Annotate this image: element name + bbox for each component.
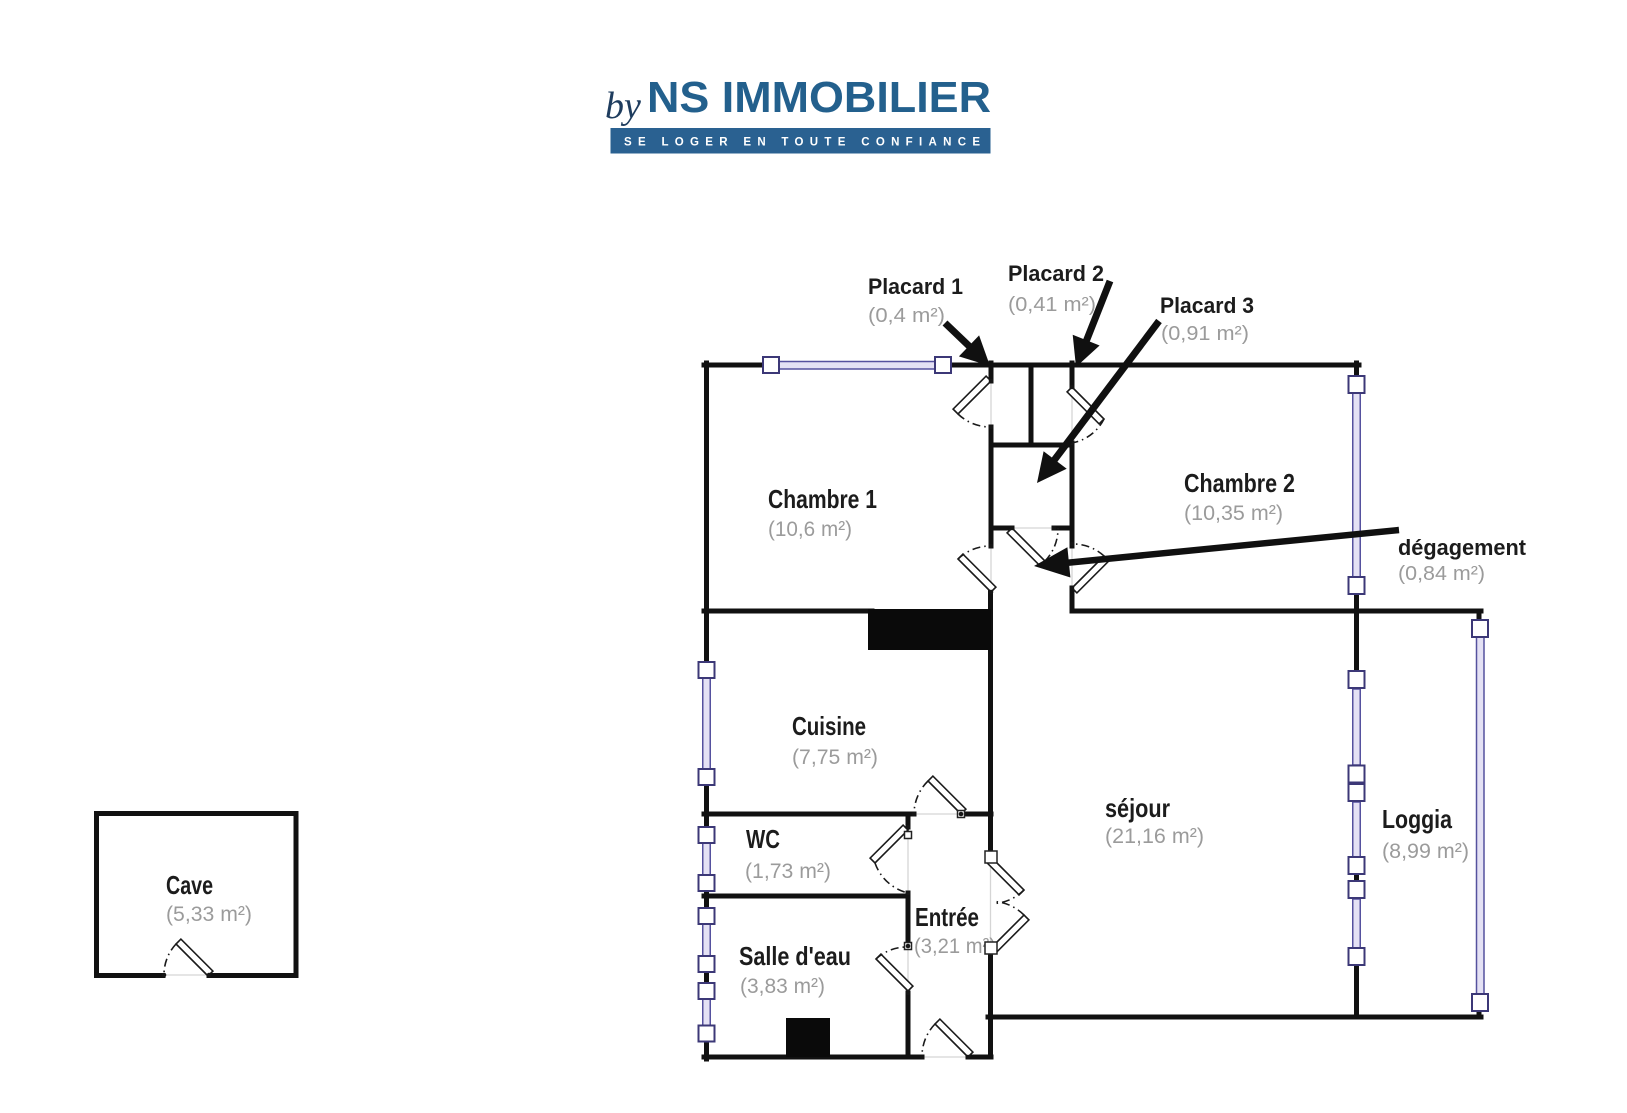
svg-text:NS IMMOBILIER: NS IMMOBILIER [647, 73, 991, 122]
svg-text:(0,84 m²): (0,84 m²) [1398, 563, 1485, 585]
svg-text:(10,6 m²): (10,6 m²) [768, 518, 852, 541]
svg-text:séjour: séjour [1105, 793, 1170, 823]
svg-text:(0,41 m²): (0,41 m²) [1008, 294, 1096, 316]
svg-text:(7,75 m²): (7,75 m²) [792, 746, 878, 769]
svg-text:(8,99 m²): (8,99 m²) [1382, 840, 1469, 863]
svg-text:Chambre 2: Chambre 2 [1184, 468, 1295, 498]
svg-text:(3,83 m²): (3,83 m²) [740, 975, 825, 998]
svg-text:Salle d'eau: Salle d'eau [739, 941, 851, 971]
svg-text:(1,73 m²): (1,73 m²) [745, 860, 831, 883]
svg-text:(0,91 m²): (0,91 m²) [1161, 323, 1249, 345]
svg-text:dégagement: dégagement [1398, 535, 1527, 560]
svg-text:(21,16 m²): (21,16 m²) [1105, 825, 1204, 848]
svg-text:Placard 3: Placard 3 [1160, 293, 1254, 318]
svg-text:(5,33 m²): (5,33 m²) [166, 903, 252, 926]
svg-text:by: by [605, 85, 641, 127]
svg-text:Cave: Cave [166, 870, 213, 900]
svg-text:Placard 2: Placard 2 [1008, 261, 1104, 286]
svg-text:Cuisine: Cuisine [792, 711, 866, 741]
svg-text:(10,35 m²): (10,35 m²) [1184, 502, 1283, 525]
svg-text:(0,4 m²): (0,4 m²) [868, 305, 945, 327]
svg-text:Chambre 1: Chambre 1 [768, 484, 877, 514]
svg-text:Placard 1: Placard 1 [868, 274, 963, 299]
svg-text:(3,21 m²): (3,21 m²) [914, 935, 996, 958]
svg-text:Loggia: Loggia [1382, 804, 1452, 834]
svg-text:WC: WC [746, 824, 780, 854]
svg-text:Entrée: Entrée [915, 902, 979, 932]
